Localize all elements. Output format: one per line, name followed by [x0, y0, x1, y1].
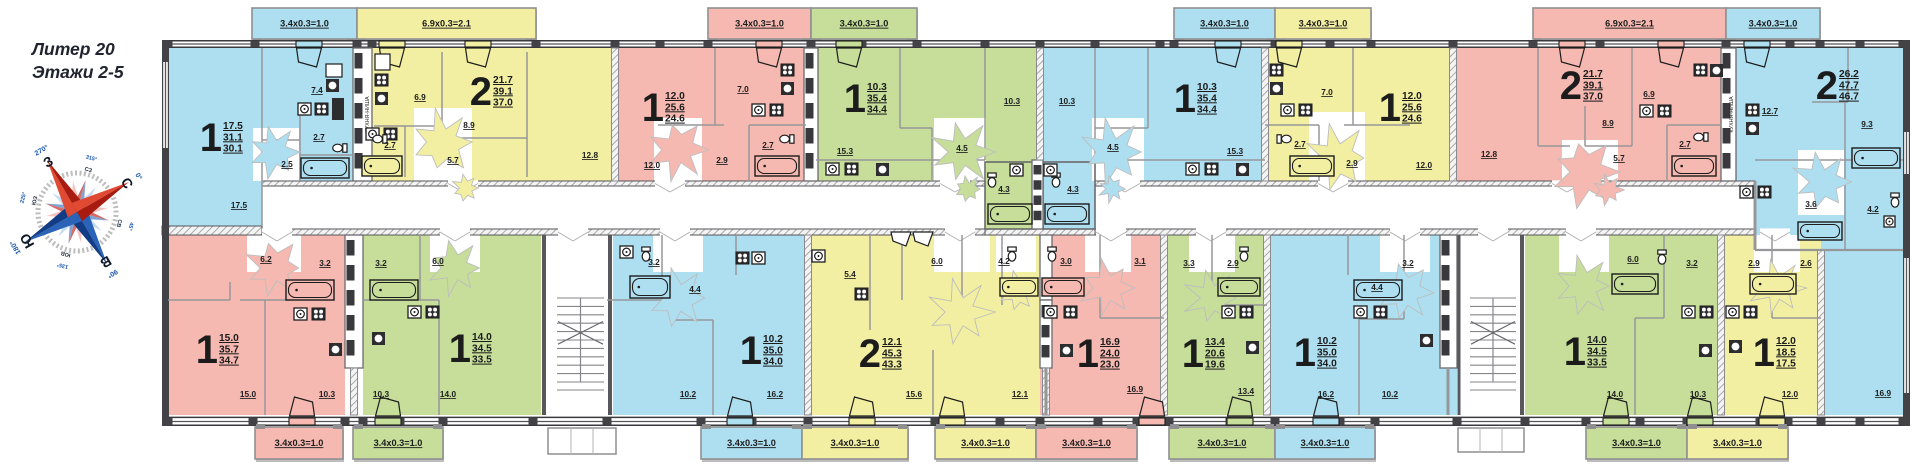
svg-text:6.9х0.3=2.1: 6.9х0.3=2.1 — [1605, 19, 1654, 29]
svg-text:5.4: 5.4 — [844, 269, 856, 279]
svg-text:16.2: 16.2 — [767, 389, 784, 399]
svg-text:4.5: 4.5 — [956, 143, 968, 153]
svg-text:16.9: 16.9 — [1100, 337, 1120, 348]
svg-text:2.9: 2.9 — [1748, 258, 1760, 268]
svg-text:3.4х0.3=1.0: 3.4х0.3=1.0 — [727, 438, 776, 448]
svg-text:5.7: 5.7 — [447, 155, 459, 165]
svg-text:10.2: 10.2 — [680, 389, 697, 399]
svg-text:12.0: 12.0 — [644, 160, 661, 170]
svg-text:12.0: 12.0 — [1776, 336, 1796, 347]
svg-text:35.0: 35.0 — [763, 345, 783, 356]
svg-text:46.7: 46.7 — [1839, 92, 1859, 103]
svg-text:9.3: 9.3 — [1861, 119, 1873, 129]
svg-text:14.0: 14.0 — [472, 332, 492, 343]
svg-text:14.0: 14.0 — [440, 389, 457, 399]
svg-text:2.7: 2.7 — [1294, 139, 1306, 149]
svg-text:14.0: 14.0 — [1607, 389, 1624, 399]
svg-text:3.4х0.3=1.0: 3.4х0.3=1.0 — [280, 19, 329, 29]
svg-text:2: 2 — [859, 332, 881, 376]
svg-text:3.4х0.3=1.0: 3.4х0.3=1.0 — [1713, 438, 1762, 448]
svg-text:15.0: 15.0 — [240, 389, 257, 399]
svg-text:10.3: 10.3 — [319, 389, 336, 399]
svg-text:17.5: 17.5 — [231, 200, 248, 210]
svg-text:25.6: 25.6 — [665, 102, 685, 113]
svg-text:39.1: 39.1 — [1583, 80, 1603, 91]
svg-text:1: 1 — [196, 328, 218, 372]
svg-text:3.6: 3.6 — [1805, 199, 1817, 209]
svg-text:33.5: 33.5 — [472, 355, 492, 366]
svg-text:Этажи 2-5: Этажи 2-5 — [32, 62, 124, 82]
svg-text:3.4х0.3=1.0: 3.4х0.3=1.0 — [831, 438, 880, 448]
svg-text:15.0: 15.0 — [219, 333, 239, 344]
svg-text:24.6: 24.6 — [1402, 114, 1422, 125]
svg-text:17.5: 17.5 — [1776, 359, 1796, 370]
svg-text:3.2: 3.2 — [648, 257, 660, 267]
svg-text:2.6: 2.6 — [1800, 258, 1812, 268]
svg-text:12.1: 12.1 — [882, 337, 902, 348]
svg-text:3.4х0.3=1.0: 3.4х0.3=1.0 — [1612, 438, 1661, 448]
svg-text:1: 1 — [1174, 77, 1196, 121]
svg-text:10.2: 10.2 — [763, 334, 783, 345]
svg-text:3.4х0.3=1.0: 3.4х0.3=1.0 — [1749, 19, 1798, 29]
svg-text:17.5: 17.5 — [223, 121, 243, 132]
svg-text:2: 2 — [1816, 64, 1838, 108]
svg-text:15.6: 15.6 — [906, 389, 923, 399]
svg-text:24.0: 24.0 — [1100, 348, 1120, 359]
svg-text:КУХНЯ-НИША: КУХНЯ-НИША — [365, 96, 371, 133]
svg-text:13.4: 13.4 — [1205, 337, 1225, 348]
svg-text:10.3: 10.3 — [1690, 389, 1707, 399]
svg-text:35.0: 35.0 — [1317, 347, 1337, 358]
svg-text:4.4: 4.4 — [1371, 282, 1383, 292]
svg-text:16.9: 16.9 — [1875, 388, 1892, 398]
svg-text:39.1: 39.1 — [493, 86, 513, 97]
svg-text:6.0: 6.0 — [432, 256, 444, 266]
svg-text:2.5: 2.5 — [281, 159, 293, 169]
svg-text:2.7: 2.7 — [762, 140, 774, 150]
svg-text:3.4х0.3=1.0: 3.4х0.3=1.0 — [840, 19, 889, 29]
svg-text:34.0: 34.0 — [763, 357, 783, 368]
svg-text:1: 1 — [1564, 330, 1586, 374]
svg-text:1: 1 — [1379, 86, 1401, 130]
svg-text:1: 1 — [1182, 332, 1204, 376]
svg-text:12.8: 12.8 — [1481, 149, 1498, 159]
svg-text:18.5: 18.5 — [1776, 347, 1796, 358]
svg-text:4.4: 4.4 — [689, 284, 701, 294]
svg-text:8.9: 8.9 — [463, 120, 475, 130]
svg-text:31.1: 31.1 — [223, 132, 243, 143]
svg-text:1: 1 — [1294, 331, 1316, 375]
svg-text:2.7: 2.7 — [384, 140, 396, 150]
svg-text:3.4х0.3=1.0: 3.4х0.3=1.0 — [275, 438, 324, 448]
svg-text:2.7: 2.7 — [313, 132, 325, 142]
svg-text:16.9: 16.9 — [1127, 384, 1144, 394]
svg-text:34.0: 34.0 — [1317, 359, 1337, 370]
svg-text:35.7: 35.7 — [219, 344, 239, 355]
svg-text:4.3: 4.3 — [1067, 184, 1079, 194]
svg-text:21.7: 21.7 — [493, 75, 513, 86]
svg-text:3.4х0.3=1.0: 3.4х0.3=1.0 — [1301, 438, 1350, 448]
svg-text:КУХНЯ-НИША: КУХНЯ-НИША — [1729, 96, 1735, 133]
svg-text:37.0: 37.0 — [493, 98, 513, 109]
svg-text:25.6: 25.6 — [1402, 102, 1422, 113]
svg-text:13.4: 13.4 — [1238, 386, 1255, 396]
svg-text:47.7: 47.7 — [1839, 80, 1859, 91]
svg-text:12.0: 12.0 — [665, 91, 685, 102]
svg-text:30.1: 30.1 — [223, 144, 243, 155]
svg-text:6.0: 6.0 — [1627, 254, 1639, 264]
svg-text:1: 1 — [740, 329, 762, 373]
svg-text:12.0: 12.0 — [1416, 160, 1433, 170]
svg-text:4.2: 4.2 — [1867, 204, 1879, 214]
svg-text:10.3: 10.3 — [867, 82, 887, 93]
svg-text:6.2: 6.2 — [260, 254, 272, 264]
svg-text:3.2: 3.2 — [1402, 258, 1414, 268]
svg-text:3.3: 3.3 — [1183, 258, 1195, 268]
svg-text:3.2: 3.2 — [375, 258, 387, 268]
svg-text:6.9х0.3=2.1: 6.9х0.3=2.1 — [422, 19, 471, 29]
svg-text:3.4х0.3=1.0: 3.4х0.3=1.0 — [1062, 438, 1111, 448]
svg-text:3.4х0.3=1.0: 3.4х0.3=1.0 — [961, 438, 1010, 448]
svg-text:10.3: 10.3 — [373, 389, 390, 399]
svg-text:34.7: 34.7 — [219, 356, 239, 367]
svg-text:34.4: 34.4 — [867, 105, 887, 116]
svg-text:10.2: 10.2 — [1317, 336, 1337, 347]
svg-text:3.1: 3.1 — [1134, 256, 1146, 266]
svg-text:2.9: 2.9 — [1227, 258, 1239, 268]
svg-text:3.2: 3.2 — [1686, 258, 1698, 268]
svg-text:37.0: 37.0 — [1583, 92, 1603, 103]
svg-text:19.6: 19.6 — [1205, 360, 1225, 371]
svg-text:6.0: 6.0 — [931, 256, 943, 266]
svg-text:10.3: 10.3 — [1197, 82, 1217, 93]
svg-text:4.5: 4.5 — [1107, 142, 1119, 152]
svg-text:23.0: 23.0 — [1100, 360, 1120, 371]
svg-text:10.2: 10.2 — [1382, 389, 1399, 399]
svg-text:7.0: 7.0 — [737, 84, 749, 94]
svg-text:24.6: 24.6 — [665, 114, 685, 125]
svg-text:21.7: 21.7 — [1583, 69, 1603, 80]
svg-text:26.2: 26.2 — [1839, 69, 1859, 80]
svg-text:1: 1 — [642, 86, 664, 130]
svg-text:1: 1 — [449, 327, 471, 371]
svg-text:15.3: 15.3 — [837, 146, 854, 156]
svg-text:2.7: 2.7 — [1679, 139, 1691, 149]
svg-text:35.4: 35.4 — [1197, 93, 1217, 104]
svg-text:7.0: 7.0 — [1321, 87, 1333, 97]
svg-text:1: 1 — [200, 116, 222, 160]
svg-text:12.8: 12.8 — [582, 150, 599, 160]
svg-text:3.2: 3.2 — [319, 258, 331, 268]
svg-text:12.7: 12.7 — [1762, 106, 1779, 116]
svg-text:3.4х0.3=1.0: 3.4х0.3=1.0 — [735, 19, 784, 29]
svg-text:Литер 20: Литер 20 — [30, 39, 115, 59]
svg-text:3.0: 3.0 — [1060, 256, 1072, 266]
svg-text:5.7: 5.7 — [1613, 153, 1625, 163]
svg-text:3.4х0.3=1.0: 3.4х0.3=1.0 — [1198, 438, 1247, 448]
svg-text:10.3: 10.3 — [1059, 96, 1076, 106]
svg-text:35.4: 35.4 — [867, 93, 887, 104]
svg-text:3.4х0.3=1.0: 3.4х0.3=1.0 — [374, 438, 423, 448]
svg-text:7.4: 7.4 — [311, 85, 323, 95]
svg-text:1: 1 — [1753, 331, 1775, 375]
svg-text:34.5: 34.5 — [1587, 346, 1607, 357]
svg-text:3.4х0.3=1.0: 3.4х0.3=1.0 — [1200, 19, 1249, 29]
svg-text:12.1: 12.1 — [1012, 389, 1029, 399]
svg-text:10.3: 10.3 — [1004, 96, 1021, 106]
svg-text:6.9: 6.9 — [1643, 89, 1655, 99]
svg-text:6.9: 6.9 — [414, 92, 426, 102]
svg-text:43.3: 43.3 — [882, 360, 902, 371]
svg-text:4.2: 4.2 — [998, 256, 1010, 266]
svg-text:8.9: 8.9 — [1602, 118, 1614, 128]
svg-text:2: 2 — [1560, 64, 1582, 108]
svg-text:34.5: 34.5 — [472, 343, 492, 354]
svg-text:2: 2 — [470, 70, 492, 114]
svg-text:12.0: 12.0 — [1402, 91, 1422, 102]
svg-text:20.6: 20.6 — [1205, 348, 1225, 359]
svg-text:34.4: 34.4 — [1197, 105, 1217, 116]
svg-text:14.0: 14.0 — [1587, 335, 1607, 346]
svg-text:1: 1 — [844, 77, 866, 121]
svg-text:12.0: 12.0 — [1782, 389, 1799, 399]
svg-text:1: 1 — [1077, 332, 1099, 376]
svg-text:2.9: 2.9 — [1346, 158, 1358, 168]
svg-text:3.4х0.3=1.0: 3.4х0.3=1.0 — [1299, 19, 1348, 29]
svg-text:33.5: 33.5 — [1587, 358, 1607, 369]
svg-text:2.9: 2.9 — [716, 155, 728, 165]
svg-text:16.2: 16.2 — [1318, 389, 1335, 399]
svg-text:45.3: 45.3 — [882, 348, 902, 359]
svg-text:15.3: 15.3 — [1227, 146, 1244, 156]
svg-text:4.3: 4.3 — [998, 184, 1010, 194]
